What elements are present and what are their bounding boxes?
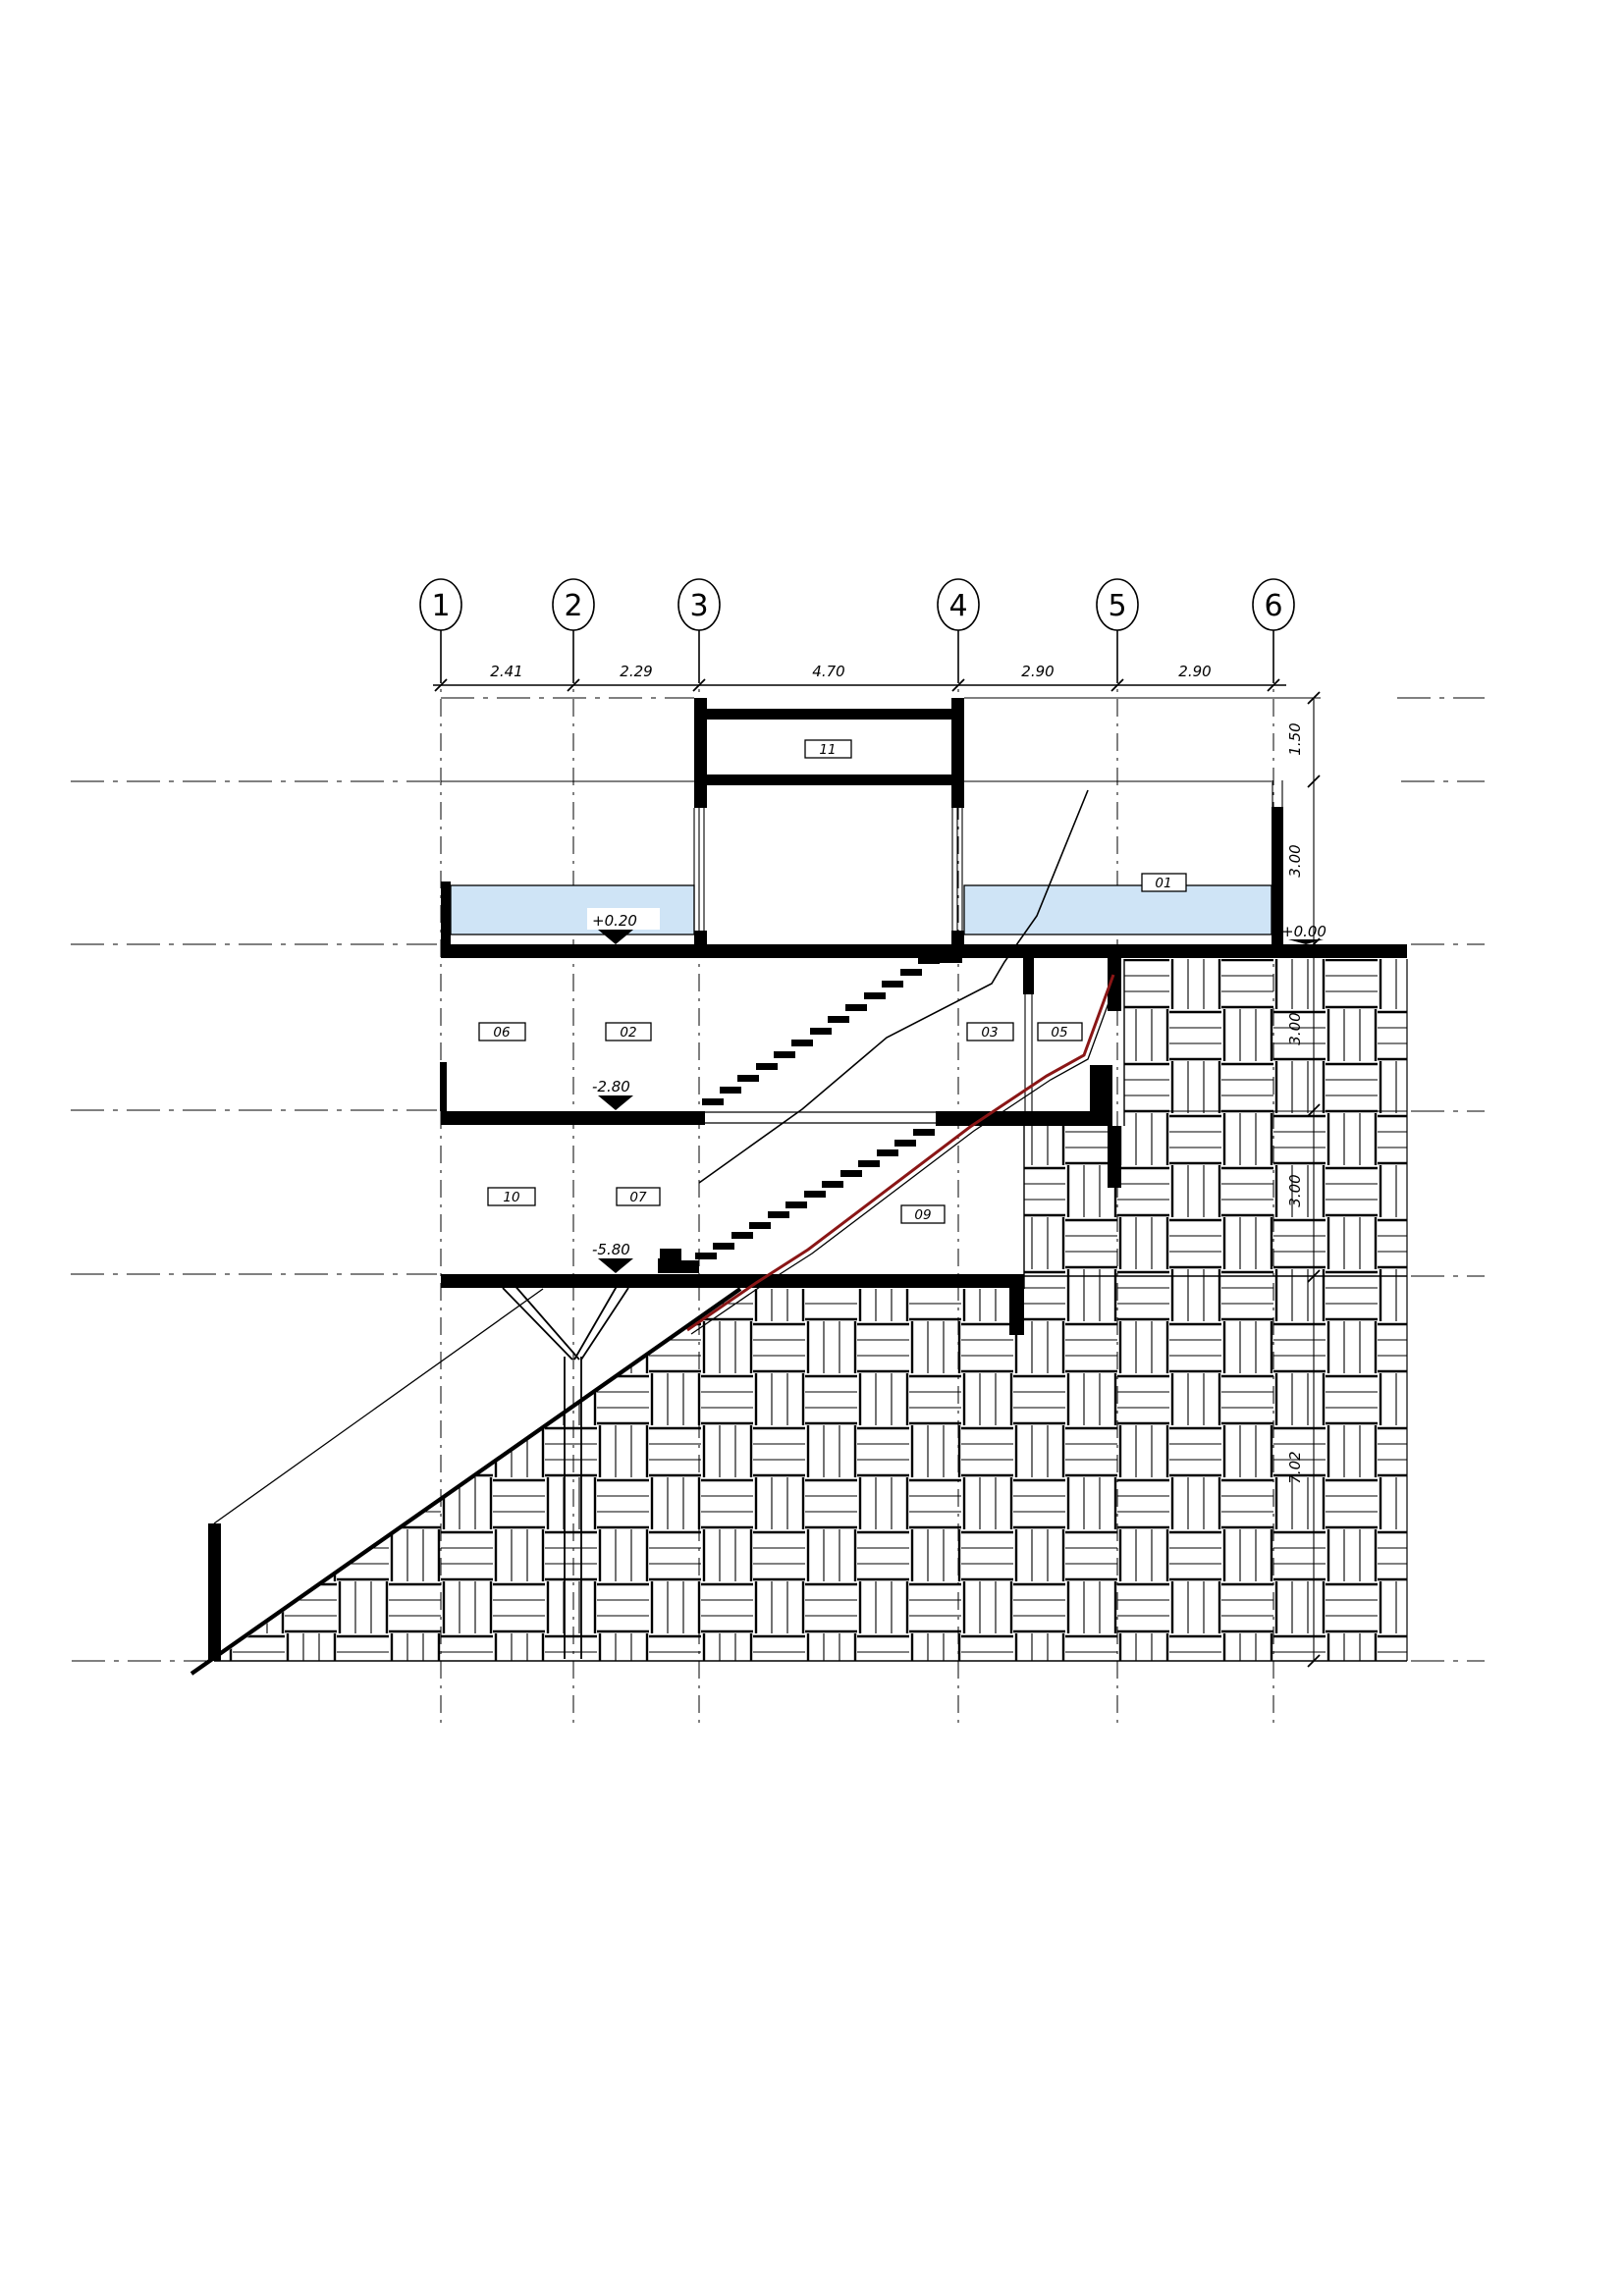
slab-minus280-right [936, 1111, 1112, 1126]
slab-minus280-left [441, 1111, 705, 1125]
svg-text:06: 06 [493, 1025, 510, 1041]
svg-text:05: 05 [1051, 1025, 1067, 1041]
wall-grid5-plinth [1090, 1065, 1112, 1111]
svg-text:07: 07 [629, 1190, 647, 1205]
svg-text:01: 01 [1155, 876, 1171, 891]
retaining-stub-wall [208, 1523, 221, 1661]
tower-roof-slab [694, 709, 964, 720]
room-label-03: 03 [967, 1023, 1013, 1041]
level-marker-580: -5.80 [587, 1237, 660, 1273]
wall-03-05 [1023, 957, 1034, 994]
grid-bubble-1: 1 [431, 589, 450, 623]
svg-text:+0.00: +0.00 [1281, 923, 1326, 940]
dim-4-5: 2.90 [1021, 663, 1054, 680]
dim-3-4: 4.70 [812, 663, 844, 680]
earth-hatch [214, 959, 1407, 1661]
grid-bubble-5: 5 [1108, 589, 1126, 623]
grid-bubble-2: 2 [564, 589, 582, 623]
level-marker-280: -2.80 [587, 1074, 660, 1110]
water-pool-right [964, 885, 1272, 934]
room-label-02: 02 [606, 1023, 651, 1041]
svg-text:03: 03 [981, 1025, 998, 1041]
section-drawing: 2.41 2.29 4.70 2.90 2.90 1 2 3 4 5 6 [0, 0, 1624, 2296]
tower-floor-slab [694, 774, 964, 785]
dim-right-300c: 3.00 [1286, 1174, 1304, 1206]
parapet-minus280 [440, 1062, 447, 1111]
svg-text:-2.80: -2.80 [592, 1078, 630, 1095]
room-label-01: 01 [1142, 874, 1186, 891]
dim-right-702: 7.02 [1286, 1451, 1304, 1483]
room-label-11: 11 [805, 740, 851, 758]
section-drawing-sheet: 2.41 2.29 4.70 2.90 2.90 1 2 3 4 5 6 [0, 0, 1624, 2296]
dim-5-6: 2.90 [1178, 663, 1211, 680]
tower-window-left [694, 808, 704, 931]
svg-text:02: 02 [620, 1025, 636, 1041]
stairs-flight-upper [702, 945, 962, 1105]
svg-text:11: 11 [819, 742, 836, 758]
dim-right-300a: 3.00 [1286, 844, 1304, 877]
room-label-05: 05 [1038, 1023, 1082, 1041]
deck-slab [441, 944, 1407, 958]
foundation-wall [1009, 1274, 1024, 1335]
svg-text:10: 10 [503, 1190, 519, 1205]
dim-2-3: 2.29 [620, 663, 652, 680]
tower-window-right [952, 808, 962, 931]
room-label-06: 06 [479, 1023, 525, 1041]
grid-bubble-3: 3 [689, 589, 708, 623]
room-label-07: 07 [617, 1188, 660, 1205]
svg-text:-5.80: -5.80 [592, 1241, 630, 1258]
svg-text:09: 09 [914, 1207, 931, 1223]
top-dimension-line: 2.41 2.29 4.70 2.90 2.90 [433, 663, 1286, 691]
room-label-10: 10 [488, 1188, 535, 1205]
slab-minus580 [441, 1274, 1011, 1288]
level-marker-020: +0.20 [587, 908, 660, 944]
dim-1-2: 2.41 [490, 663, 522, 680]
grid-bubble-6: 6 [1264, 589, 1282, 623]
wall-grid5-lower [1108, 1126, 1121, 1188]
dim-right-300b: 3.00 [1286, 1012, 1304, 1044]
room-label-09: 09 [901, 1205, 945, 1223]
grid-bubble-4: 4 [948, 589, 967, 623]
level-marker-000: +0.00 [1281, 923, 1326, 944]
svg-text:+0.20: +0.20 [592, 912, 637, 930]
dim-right-150: 1.50 [1286, 722, 1304, 755]
grid-bubbles: 1 2 3 4 5 6 [420, 579, 1294, 683]
